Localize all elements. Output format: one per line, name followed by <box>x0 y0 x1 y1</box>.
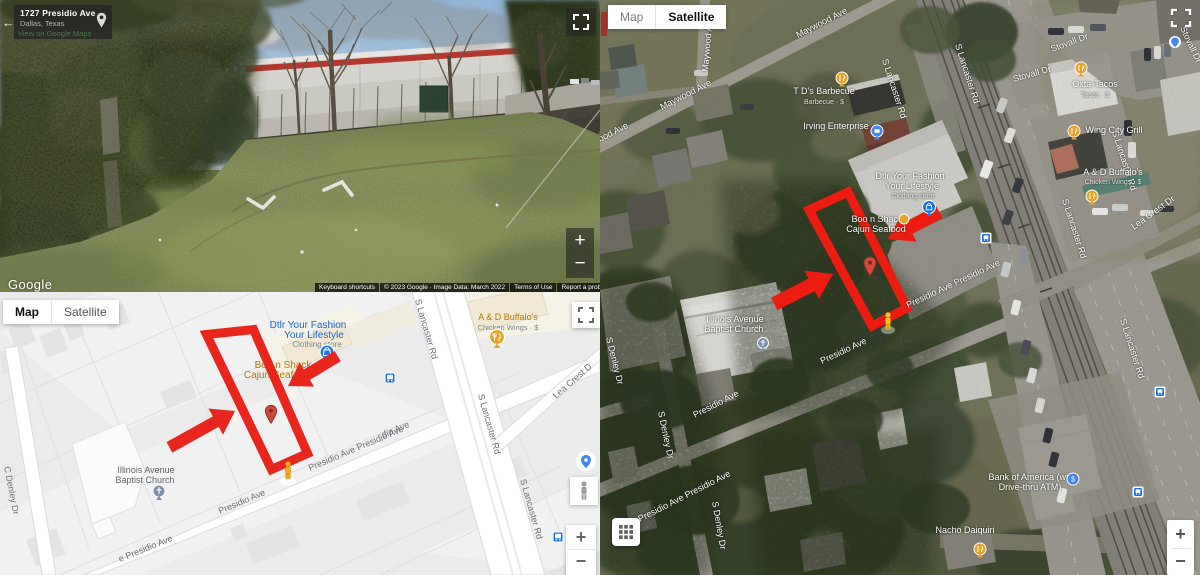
svg-text:Illinois Avenue: Illinois Avenue <box>117 465 174 475</box>
svg-text:T D's Barbecue: T D's Barbecue <box>793 86 855 96</box>
svg-text:Wing City Grill: Wing City Grill <box>1085 125 1142 135</box>
svg-text:Irving Enterprise: Irving Enterprise <box>803 121 869 131</box>
svg-text:A & D Buffalo's: A & D Buffalo's <box>478 312 538 322</box>
svg-text:Barbecue · $: Barbecue · $ <box>804 99 844 106</box>
svg-text:Nacho Daiquiri: Nacho Daiquiri <box>935 525 994 535</box>
svg-text:Baptist Church: Baptist Church <box>704 324 763 334</box>
svg-text:Chicken Wings · $: Chicken Wings · $ <box>1085 179 1142 186</box>
svg-text:Cajun Seafood: Cajun Seafood <box>846 224 906 234</box>
svg-text:Oxta-Tacos: Oxta-Tacos <box>1072 79 1118 89</box>
svg-text:Your Lifestyle: Your Lifestyle <box>885 181 939 191</box>
svg-text:Bank of America (with: Bank of America (with <box>988 472 1075 482</box>
svg-text:Baptist Church: Baptist Church <box>115 475 174 485</box>
svg-text:$: $ <box>1071 477 1075 484</box>
svg-text:Dtlr Your Fashion: Dtlr Your Fashion <box>875 171 944 181</box>
svg-text:Clothing store: Clothing store <box>292 340 342 349</box>
svg-text:Chicken Wings · $: Chicken Wings · $ <box>478 323 540 332</box>
svg-text:Clothing store: Clothing store <box>891 193 934 200</box>
svg-text:Drive-thru ATM): Drive-thru ATM) <box>999 482 1062 492</box>
svg-text:Illinois Avenue: Illinois Avenue <box>706 314 763 324</box>
svg-text:Tacos · $: Tacos · $ <box>1081 92 1110 99</box>
svg-text:Boo n Shack: Boo n Shack <box>851 214 903 224</box>
svg-text:A & D Buffalo's: A & D Buffalo's <box>1083 167 1143 177</box>
